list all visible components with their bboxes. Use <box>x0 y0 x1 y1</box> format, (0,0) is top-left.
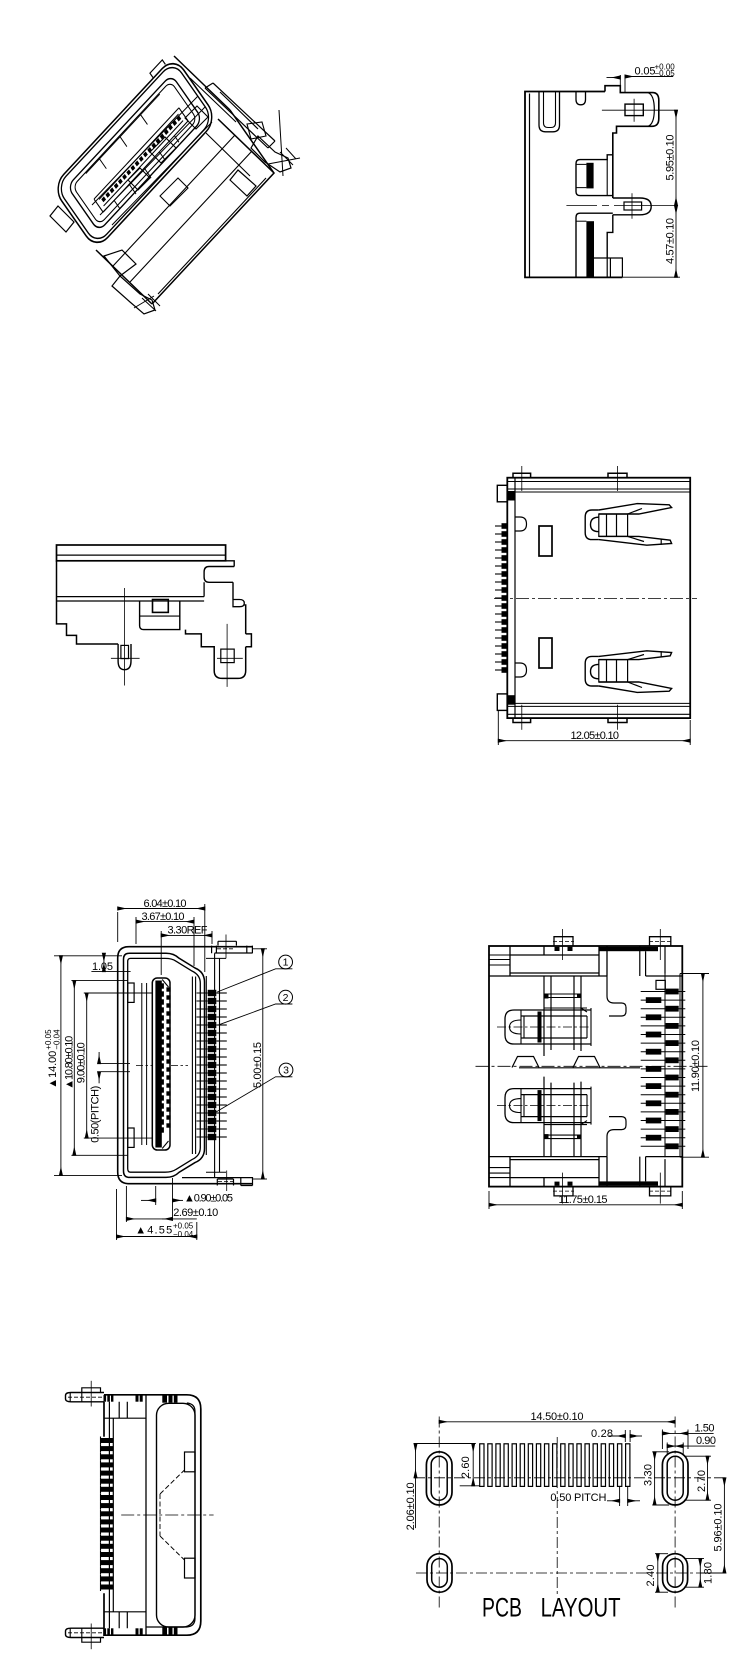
svg-text:0.50 PITCH: 0.50 PITCH <box>550 1492 606 1504</box>
svg-text:11.90±0.10: 11.90±0.10 <box>690 1040 702 1092</box>
svg-text:5.95±0.10: 5.95±0.10 <box>665 135 677 181</box>
svg-text:1.80: 1.80 <box>703 1562 715 1584</box>
svg-text:2.06±0.10: 2.06±0.10 <box>405 1482 417 1530</box>
svg-text:14.50±0.10: 14.50±0.10 <box>531 1411 584 1423</box>
svg-text:2.60: 2.60 <box>460 1456 472 1478</box>
svg-text:5.00±0.15: 5.00±0.15 <box>252 1042 264 1088</box>
svg-text:1.05: 1.05 <box>92 961 113 973</box>
svg-text:4.57±0.10: 4.57±0.10 <box>665 218 677 264</box>
svg-text:2.69±0.10: 2.69±0.10 <box>173 1207 218 1219</box>
svg-text:2: 2 <box>283 992 289 1004</box>
svg-text:▲14.00: ▲14.00 <box>47 1051 59 1089</box>
svg-text:0.28: 0.28 <box>591 1428 613 1440</box>
svg-text:PCB: PCB <box>482 1593 522 1623</box>
svg-text:12.05±0.10: 12.05±0.10 <box>571 730 620 742</box>
svg-text:9.00±0.10: 9.00±0.10 <box>76 1042 88 1083</box>
svg-text:0.50(PITCH): 0.50(PITCH) <box>89 1086 101 1143</box>
svg-text:0.90: 0.90 <box>696 1435 716 1447</box>
svg-text:▲0.90±0.05: ▲0.90±0.05 <box>184 1192 233 1204</box>
svg-text:−0.04: −0.04 <box>53 1029 62 1050</box>
svg-text:▲10.80±0.10: ▲10.80±0.10 <box>64 1036 76 1090</box>
svg-text:2.70: 2.70 <box>696 1470 708 1492</box>
svg-text:▲4.55: ▲4.55 <box>135 1225 172 1237</box>
svg-text:2.40: 2.40 <box>645 1565 657 1587</box>
svg-text:3.30: 3.30 <box>643 1464 655 1486</box>
svg-text:−0.04: −0.04 <box>173 1230 194 1239</box>
svg-text:6.04±0.10: 6.04±0.10 <box>144 898 187 910</box>
svg-text:11.75±0.15: 11.75±0.15 <box>559 1194 608 1206</box>
svg-text:0.05: 0.05 <box>635 66 656 78</box>
svg-text:LAYOUT: LAYOUT <box>541 1593 621 1623</box>
svg-text:5.96±0.10: 5.96±0.10 <box>712 1504 724 1552</box>
svg-text:3: 3 <box>283 1065 289 1077</box>
svg-text:3.67±0.10: 3.67±0.10 <box>142 911 185 923</box>
svg-text:1.50: 1.50 <box>695 1423 715 1435</box>
svg-text:−0.05: −0.05 <box>655 69 676 78</box>
svg-text:3.30REF: 3.30REF <box>168 925 208 937</box>
svg-text:1: 1 <box>283 957 289 969</box>
